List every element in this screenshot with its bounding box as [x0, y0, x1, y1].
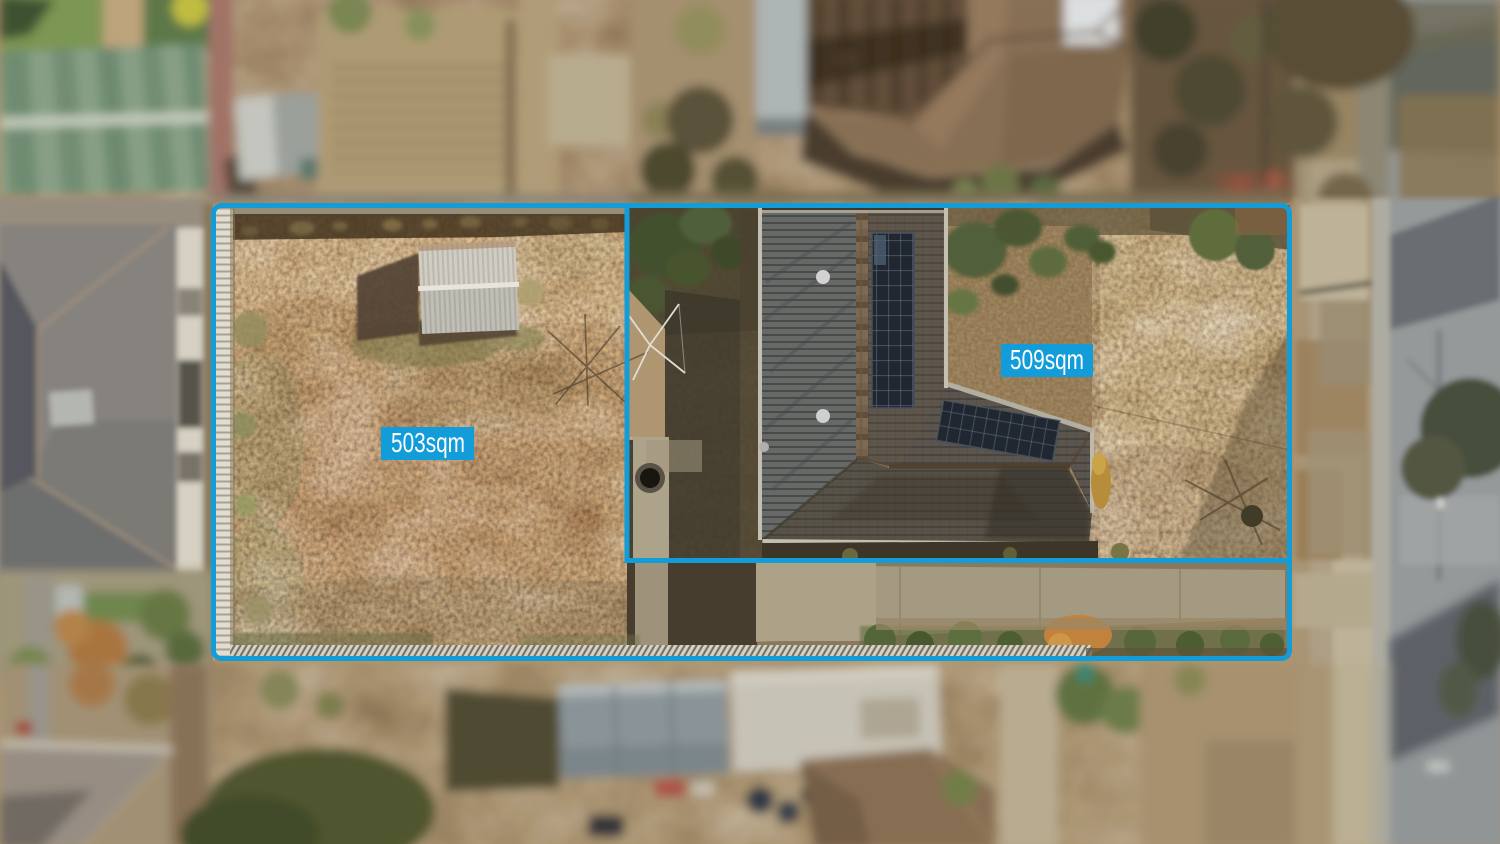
svg-text:503sqm: 503sqm [391, 427, 465, 458]
svg-text:509sqm: 509sqm [1010, 344, 1084, 375]
